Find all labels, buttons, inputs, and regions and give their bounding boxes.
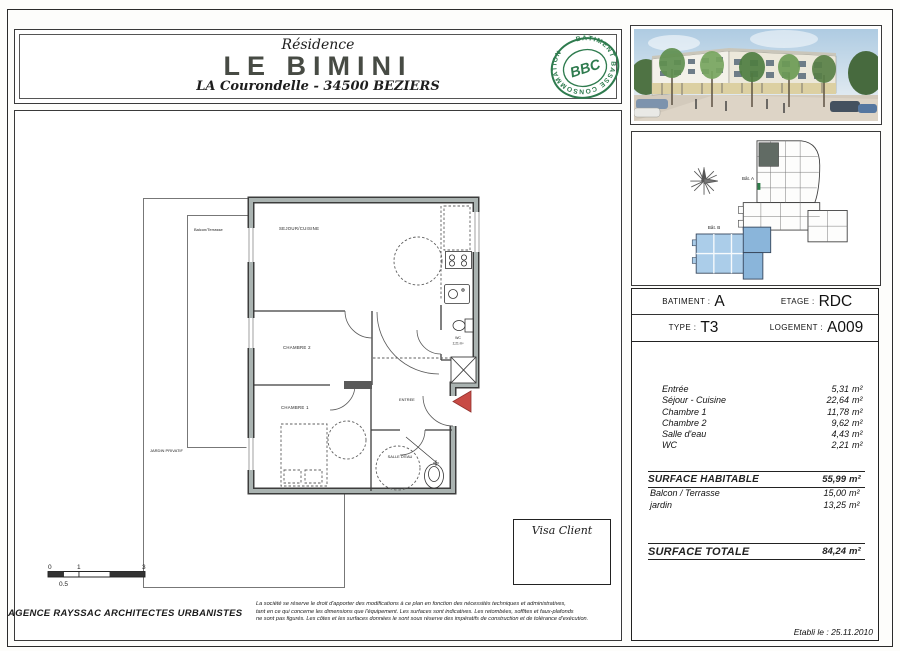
visa-client-label: Visa Client <box>514 520 610 537</box>
room-name: Séjour - Cuisine <box>662 395 809 406</box>
surface-totale-block: SURFACE TOTALE 84,24 m² <box>648 543 865 560</box>
surface-habitable-label: SURFACE HABITABLE <box>648 474 806 485</box>
surface-habitable-value: 55,99 <box>806 474 846 485</box>
disclaimer-text: La société se réserve le droit d'apporte… <box>256 601 622 624</box>
room-area: 2,21 <box>809 440 849 451</box>
bbc-stamp-icon: BÂTIMENT BASSE CONSOMMATION · BBC <box>543 31 627 105</box>
balcon-outline <box>188 216 251 448</box>
extra-unit: m² <box>846 488 865 500</box>
title-block-inner: Résidence LE BIMINI LA Courondelle - 345… <box>19 34 617 99</box>
extra-row: jardin 13,25 m² <box>648 500 865 512</box>
room-area: 4,43 <box>809 429 849 440</box>
surface-totale-unit: m² <box>846 546 865 557</box>
room-area: 22,64 <box>809 395 849 406</box>
room-label-wc-area: 2,21 m² <box>453 342 464 346</box>
site-plan-box: Bât. A Bât. B <box>631 131 881 286</box>
room-label-chambre1: CHAMBRE 1 <box>281 405 309 410</box>
batiment-b <box>692 227 770 279</box>
scale-bar-segments <box>48 572 145 578</box>
surface-habitable-block: SURFACE HABITABLE 55,99 m² Balcon / Terr… <box>648 471 865 511</box>
unit-highlight <box>759 143 779 167</box>
room-area: 11,78 <box>809 407 849 418</box>
room-row: Salle d'eau 4,43 m² <box>662 429 868 440</box>
bbc-center-text: BBC <box>568 56 603 81</box>
visa-client-box: Visa Client <box>513 519 611 585</box>
room-unit: m² <box>849 395 868 406</box>
logement-value: A009 <box>827 319 863 337</box>
site-plan: Bât. A Bât. B <box>632 132 880 284</box>
agency-name: AGENCE RAYSSAC ARCHITECTES URBANISTES <box>8 608 242 619</box>
room-label-sejour: SEJOUR/CUISINE <box>279 226 319 231</box>
room-unit: m² <box>849 440 868 451</box>
bat-b-label: Bât. B <box>708 225 720 230</box>
room-row: Entrée 5,31 m² <box>662 384 868 395</box>
batiment-label: BATIMENT : <box>662 297 710 306</box>
plan-sheet: Résidence LE BIMINI LA Courondelle - 345… <box>0 0 900 651</box>
title-block: Résidence LE BIMINI LA Courondelle - 345… <box>14 29 622 104</box>
room-areas-list: Entrée 5,31 m² Séjour - Cuisine 22,64 m²… <box>662 384 868 452</box>
room-name: Chambre 2 <box>662 418 809 429</box>
room-label-jardin: JARDIN PRIVATIF <box>150 448 184 453</box>
room-label-entree: ENTREE <box>399 397 415 402</box>
room-row: WC 2,21 m² <box>662 440 868 451</box>
shaft-box <box>451 357 476 383</box>
room-area: 5,31 <box>809 384 849 395</box>
disclaimer-line: ne sont pas figurés. Les côtes et les su… <box>256 616 622 624</box>
extra-row: Balcon / Terrasse 15,00 m² <box>648 488 865 500</box>
page-subtitle: LA Courondelle - 34500 BEZIERS <box>20 79 616 94</box>
bat-a-label: Bât. A <box>742 176 754 181</box>
etabli-date: Etabli le : 25.11.2010 <box>794 627 873 637</box>
type-label: TYPE : <box>669 323 697 332</box>
type-value: T3 <box>700 319 718 337</box>
type-logement-row: TYPE : T3 LOGEMENT : A009 <box>632 314 878 342</box>
room-label-salle-deau: SALLE D'EAU <box>388 454 413 459</box>
room-row: Chambre 1 11,78 m² <box>662 407 868 418</box>
scale-tick-0: 0 <box>48 564 52 571</box>
scale-tick-05: 0.5 <box>59 581 68 588</box>
room-label-balcon: Balcon/Terrasse <box>194 227 223 232</box>
room-label-wc: WC <box>455 336 461 340</box>
room-area: 9,62 <box>809 418 849 429</box>
room-unit: m² <box>849 418 868 429</box>
room-label-chambre2: CHAMBRE 2 <box>283 345 311 350</box>
room-name: Salle d'eau <box>662 429 809 440</box>
surface-totale-value: 84,24 <box>806 546 846 557</box>
floor-plan: SEJOUR/CUISINE CHAMBRE 2 CHAMBRE 1 ENTRE… <box>128 190 494 594</box>
etage-value: RDC <box>819 293 853 311</box>
logement-label: LOGEMENT : <box>770 323 823 332</box>
room-unit: m² <box>849 384 868 395</box>
room-name: Chambre 1 <box>662 407 809 418</box>
scale-bar: 0 1 3 0.5 <box>44 560 154 590</box>
room-unit: m² <box>849 407 868 418</box>
surface-habitable-row: SURFACE HABITABLE 55,99 m² <box>648 471 865 488</box>
extra-value: 13,25 <box>806 500 846 512</box>
extra-name: Balcon / Terrasse <box>650 488 806 500</box>
rendering-box <box>630 25 882 125</box>
disclaimer-line: La société se réserve le droit d'apporte… <box>256 601 622 609</box>
wall-chunk <box>344 381 372 389</box>
extra-name: jardin <box>650 500 806 512</box>
room-name: WC <box>662 440 809 451</box>
batiment-value: A <box>714 293 724 311</box>
page-title: LE BIMINI <box>20 53 616 79</box>
etage-label: ETAGE : <box>781 297 815 306</box>
extra-unit: m² <box>846 500 865 512</box>
info-table: BATIMENT : A ETAGE : RDC TYPE : T3 LOGEM… <box>631 288 879 641</box>
room-name: Entrée <box>662 384 809 395</box>
room-unit: m² <box>849 429 868 440</box>
scale-tick-1: 1 <box>77 564 81 571</box>
room-row: Chambre 2 9,62 m² <box>662 418 868 429</box>
surface-habitable-unit: m² <box>846 474 865 485</box>
scale-tick-3: 3 <box>142 564 146 571</box>
building-rendering <box>634 29 878 121</box>
disclaimer-line: tant en ce qui concerne les dimensions q… <box>256 609 622 617</box>
room-row: Séjour - Cuisine 22,64 m² <box>662 395 868 406</box>
surface-totale-label: SURFACE TOTALE <box>648 546 806 558</box>
extra-value: 15,00 <box>806 488 846 500</box>
batiment-etage-row: BATIMENT : A ETAGE : RDC <box>632 289 878 315</box>
surface-totale-row: SURFACE TOTALE 84,24 m² <box>648 543 865 560</box>
compass-icon <box>690 167 717 194</box>
